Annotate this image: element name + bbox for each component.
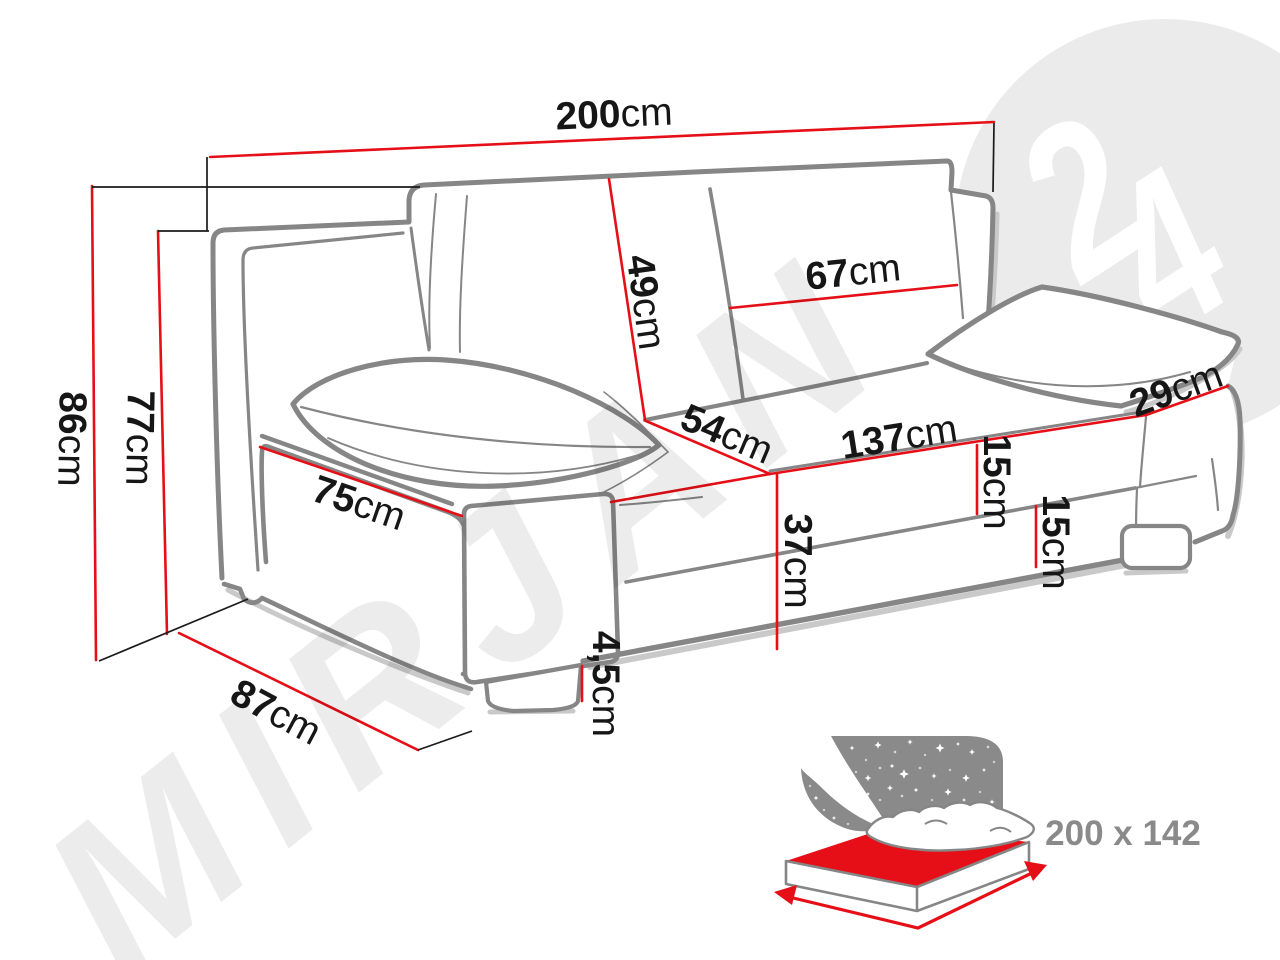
svg-text:86cm: 86cm [49, 391, 94, 487]
svg-text:37cm: 37cm [776, 513, 819, 608]
svg-text:200 x 142: 200 x 142 [1045, 814, 1201, 853]
svg-text:15cm: 15cm [975, 434, 1018, 529]
svg-text:77cm: 77cm [117, 390, 162, 486]
svg-text:200cm: 200cm [555, 90, 674, 138]
svg-text:15cm: 15cm [1034, 494, 1077, 589]
